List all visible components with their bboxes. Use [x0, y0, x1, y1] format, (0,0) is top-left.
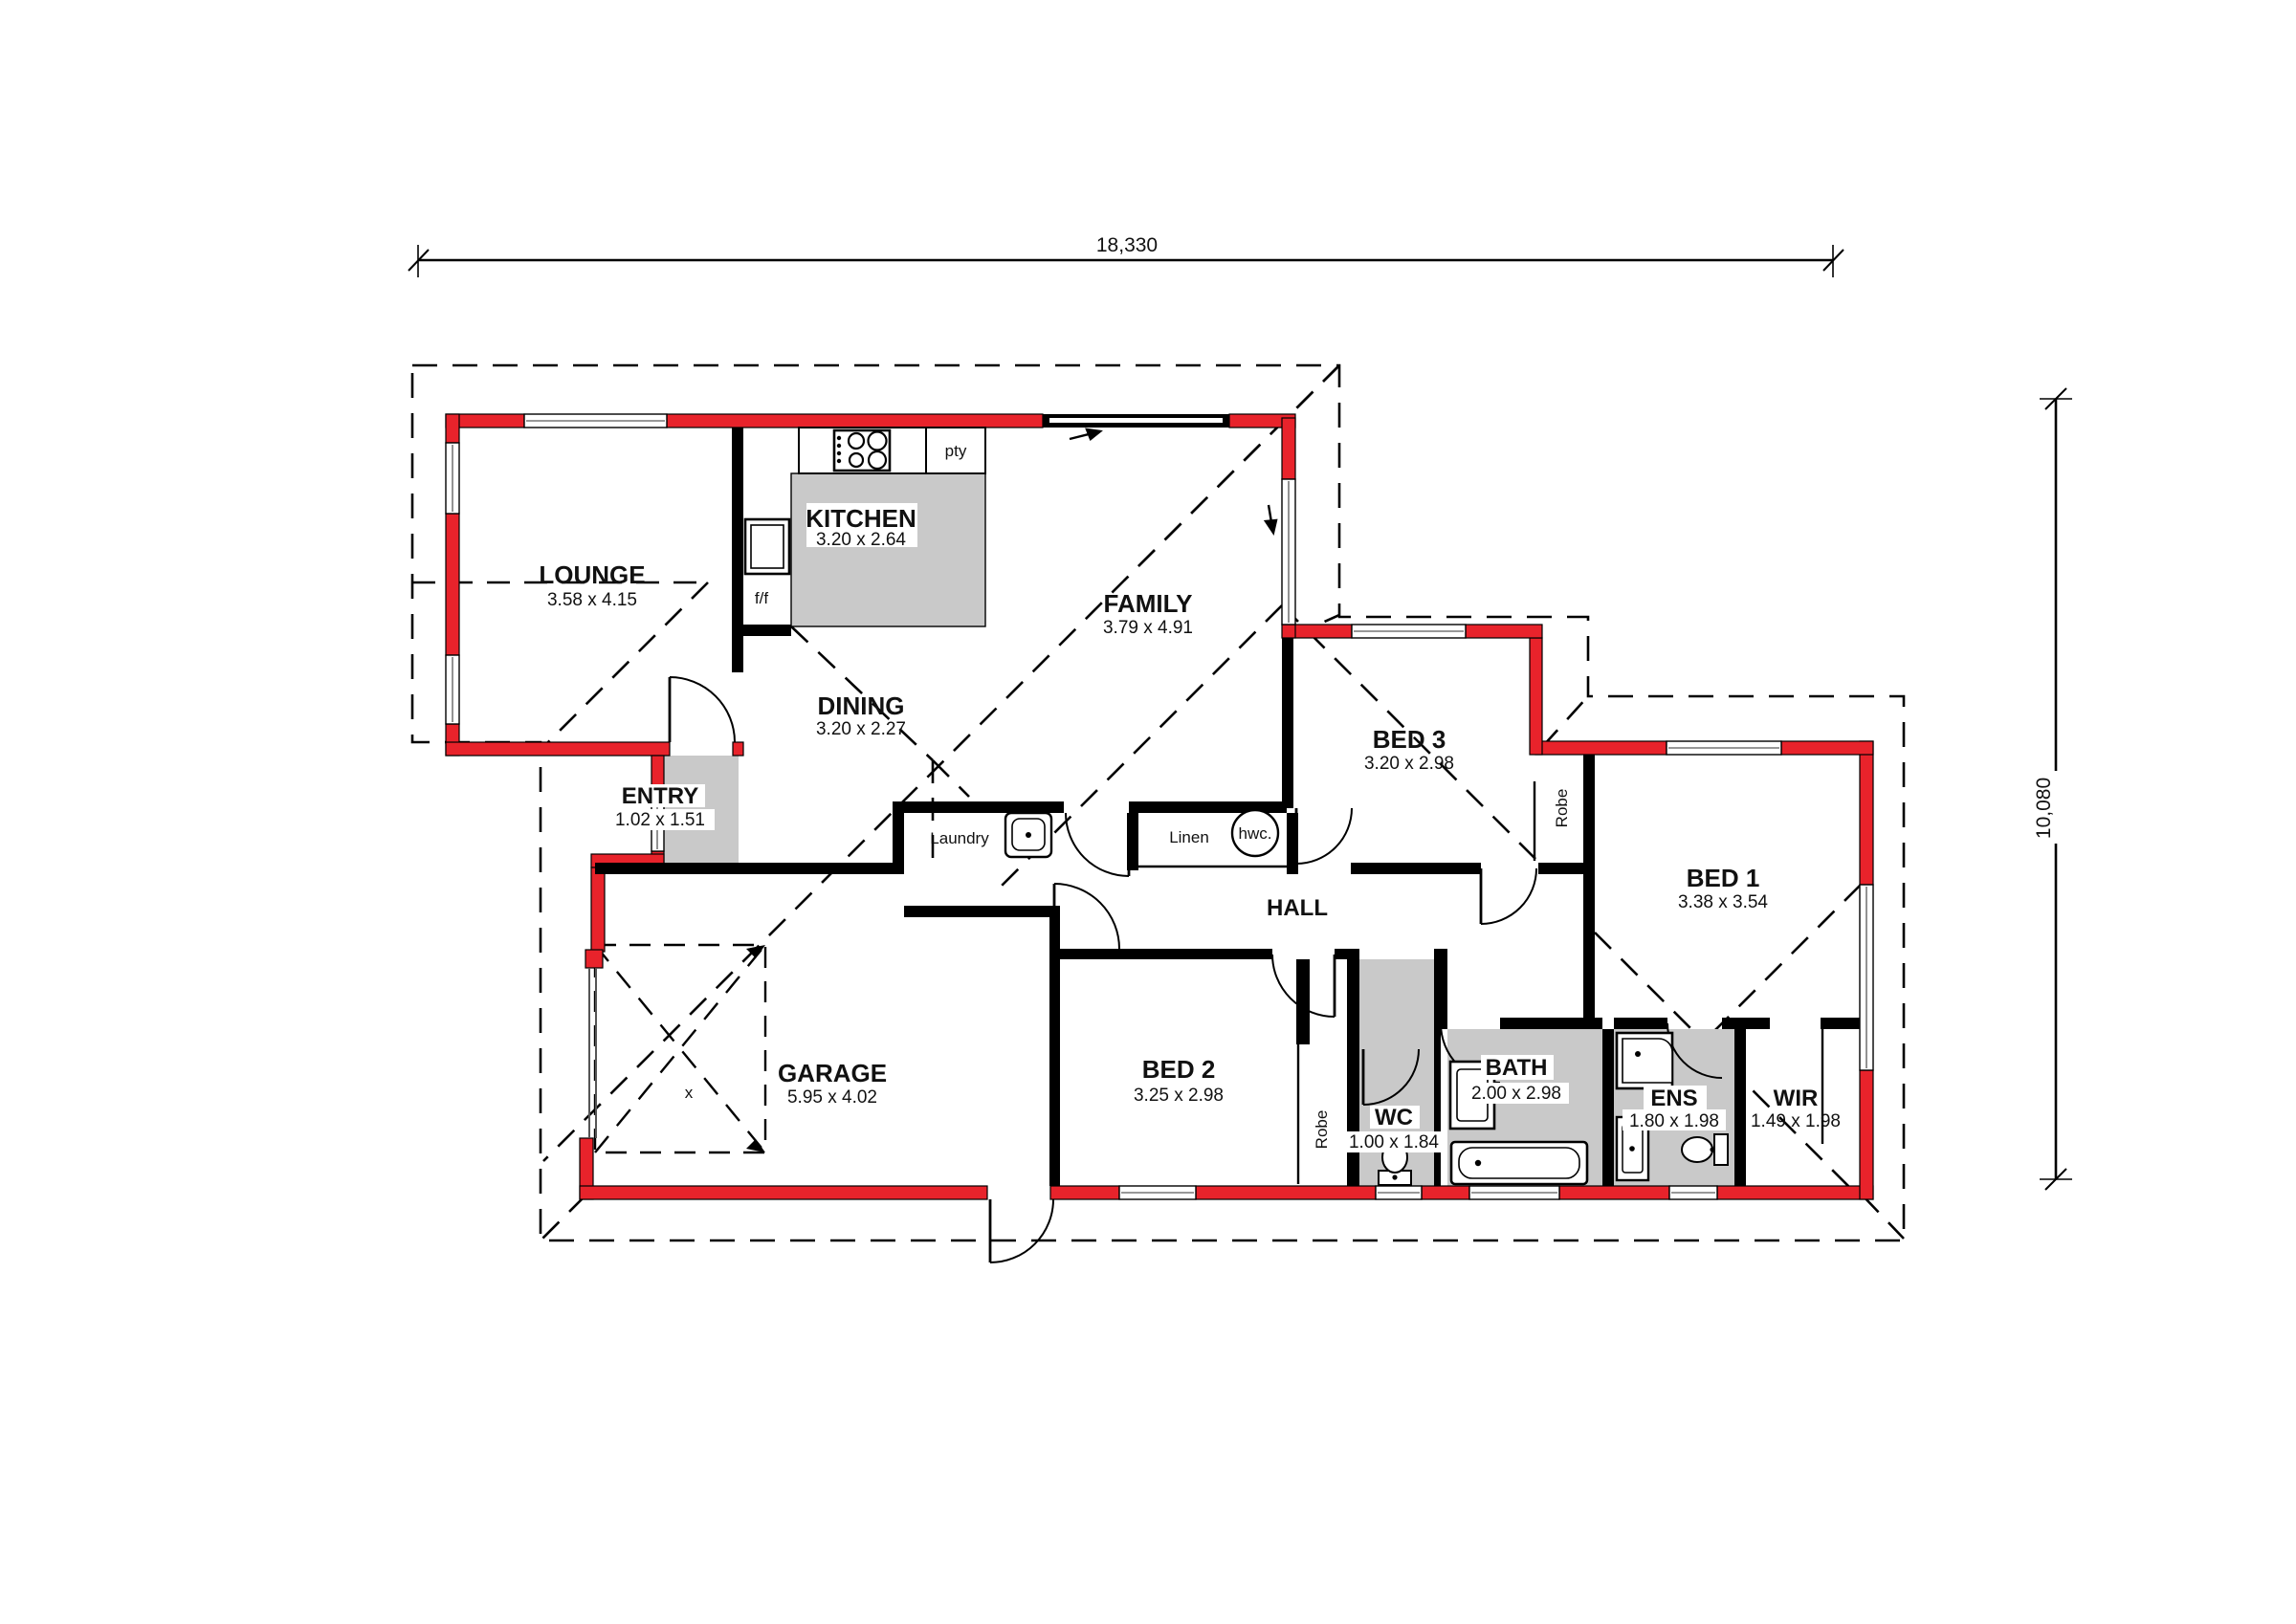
room-dims-garage: 5.95 x 4.02	[787, 1087, 877, 1108]
direction-arrows	[1070, 429, 1276, 533]
room-label-hall: HALL	[1267, 895, 1328, 921]
room-label-wir: WIR	[1774, 1086, 1819, 1111]
laundry-label: Laundry	[930, 829, 989, 847]
room-label-bed3: BED 3	[1373, 725, 1446, 754]
room-dims-kitchen: 3.20 x 2.64	[816, 530, 906, 550]
bath-tub-icon	[1451, 1142, 1587, 1184]
room-label-entry: ENTRY	[622, 783, 698, 809]
room-dims-lounge: 3.58 x 4.15	[547, 590, 637, 610]
laundry-tub-icon	[1005, 813, 1051, 857]
room-dims-bed1: 3.38 x 3.54	[1678, 892, 1768, 912]
hwc-label: hwc.	[1239, 824, 1272, 843]
room-dims-dining: 3.20 x 2.27	[816, 719, 906, 739]
garage-ceiling-marking	[595, 945, 765, 1152]
garage-x-label: x	[685, 1084, 694, 1102]
overall-width-dim: 18,330	[1096, 234, 1158, 256]
room-label-dining: DINING	[818, 691, 905, 720]
room-label-garage: GARAGE	[778, 1059, 887, 1087]
ens-toilet-icon	[1682, 1134, 1728, 1165]
room-dims-bed2: 3.25 x 2.98	[1134, 1086, 1224, 1106]
room-dims-family: 3.79 x 4.91	[1103, 618, 1193, 638]
fridge-icon	[745, 519, 789, 574]
room-label-family: FAMILY	[1104, 589, 1193, 618]
pantry-label: pty	[945, 442, 967, 460]
room-label-ens: ENS	[1650, 1086, 1697, 1111]
room-dims-bath: 2.00 x 2.98	[1471, 1084, 1561, 1104]
room-label-kitchen: KITCHEN	[806, 504, 916, 533]
room-label-wc: WC	[1375, 1105, 1413, 1130]
room-label-bath: BATH	[1486, 1055, 1548, 1081]
kitchen-bench	[791, 473, 985, 626]
room-dims-ens: 1.80 x 1.98	[1629, 1111, 1719, 1131]
linen-label: Linen	[1169, 828, 1209, 846]
ens-shower-icon	[1617, 1033, 1672, 1088]
floor-plan-page: LOUNGE 3.58 x 4.15 KITCHEN 3.20 x 2.64 F…	[0, 0, 2296, 1624]
family-top-window	[1043, 414, 1229, 428]
room-dims-bed3: 3.20 x 2.98	[1364, 754, 1454, 774]
fridge-label: f/f	[755, 589, 768, 607]
room-dims-wc: 1.00 x 1.84	[1349, 1132, 1439, 1152]
robe-bed3-label: Robe	[1553, 789, 1571, 828]
garage-marking-arrowheads	[746, 945, 765, 1152]
overall-height-dim: 10,080	[2033, 778, 2055, 839]
room-label-bed1: BED 1	[1687, 864, 1760, 892]
room-dims-wir: 1.49 x 1.98	[1751, 1111, 1841, 1131]
floor-plan-drawing: LOUNGE 3.58 x 4.15 KITCHEN 3.20 x 2.64 F…	[0, 0, 2296, 1624]
room-label-lounge: LOUNGE	[539, 560, 645, 589]
robe-bed2-label: Robe	[1313, 1110, 1331, 1150]
room-dims-entry: 1.02 x 1.51	[615, 810, 705, 830]
room-label-bed2: BED 2	[1142, 1055, 1216, 1084]
